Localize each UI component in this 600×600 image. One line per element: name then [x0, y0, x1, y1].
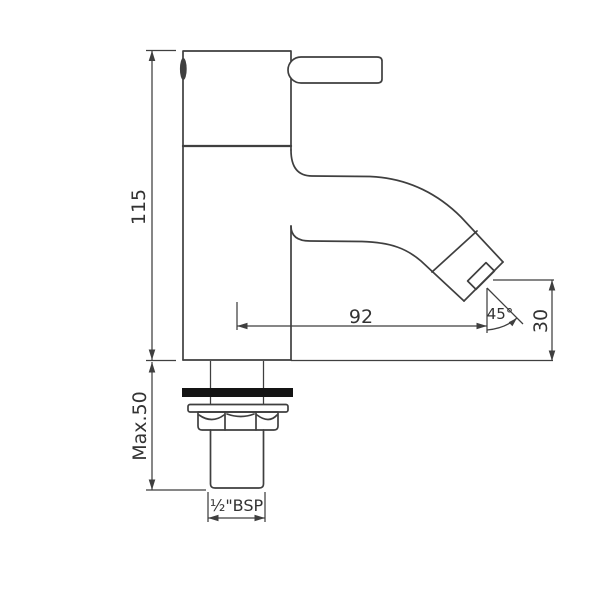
mounting-nut — [198, 412, 278, 430]
arrowhead-right — [477, 323, 488, 330]
arrowhead-up — [549, 280, 556, 291]
spout-lower-curve — [291, 226, 464, 301]
spout-upper-curve — [291, 150, 503, 262]
dimension-angle-45: 45° — [487, 288, 523, 330]
threaded-shank — [211, 430, 264, 488]
shank-upper-lines — [211, 361, 264, 405]
dimension-annotations: 115 Max.50 92 45° — [128, 51, 555, 523]
spout — [291, 150, 503, 301]
dimension-reach-92: 92 — [237, 302, 487, 330]
aerator-outlet — [468, 263, 495, 290]
arrowhead-left — [237, 323, 248, 330]
drawing-canvas: 115 Max.50 92 45° — [0, 0, 600, 600]
rubber-gasket — [182, 388, 293, 397]
dimension-thread-bsp: ½"BSP — [208, 492, 265, 522]
height-dimension-label: 115 — [128, 189, 150, 225]
dimension-max-deck-50: Max.50 — [129, 362, 206, 490]
arrowhead-down — [549, 351, 556, 362]
arrowhead-right — [255, 515, 266, 522]
nut-outline — [198, 412, 278, 430]
reach-dimension-label: 92 — [349, 306, 373, 328]
arrowhead-left — [208, 515, 219, 522]
arrowhead-up — [149, 362, 156, 373]
angle-dimension-label: 45° — [487, 305, 514, 323]
dimension-outlet-height-30: 30 — [530, 280, 555, 361]
spout-cap-line — [432, 231, 477, 272]
mounting-assembly — [182, 361, 293, 488]
arrowhead-up — [149, 51, 156, 62]
lever-handle — [288, 57, 382, 83]
dimension-height-115: 115 — [128, 51, 176, 361]
outlet-height-dimension-label: 30 — [530, 309, 552, 333]
indicator-dot — [180, 58, 187, 80]
technical-drawing: 115 Max.50 92 45° — [0, 0, 600, 600]
faucet-figure — [180, 51, 503, 488]
arrowhead-down — [149, 480, 156, 491]
nut-chamfer-arcs — [199, 414, 277, 420]
flange-washer — [188, 405, 288, 413]
max-deck-dimension-label: Max.50 — [129, 391, 151, 461]
thread-dimension-label: ½"BSP — [210, 496, 264, 515]
arrowhead-down — [149, 350, 156, 361]
